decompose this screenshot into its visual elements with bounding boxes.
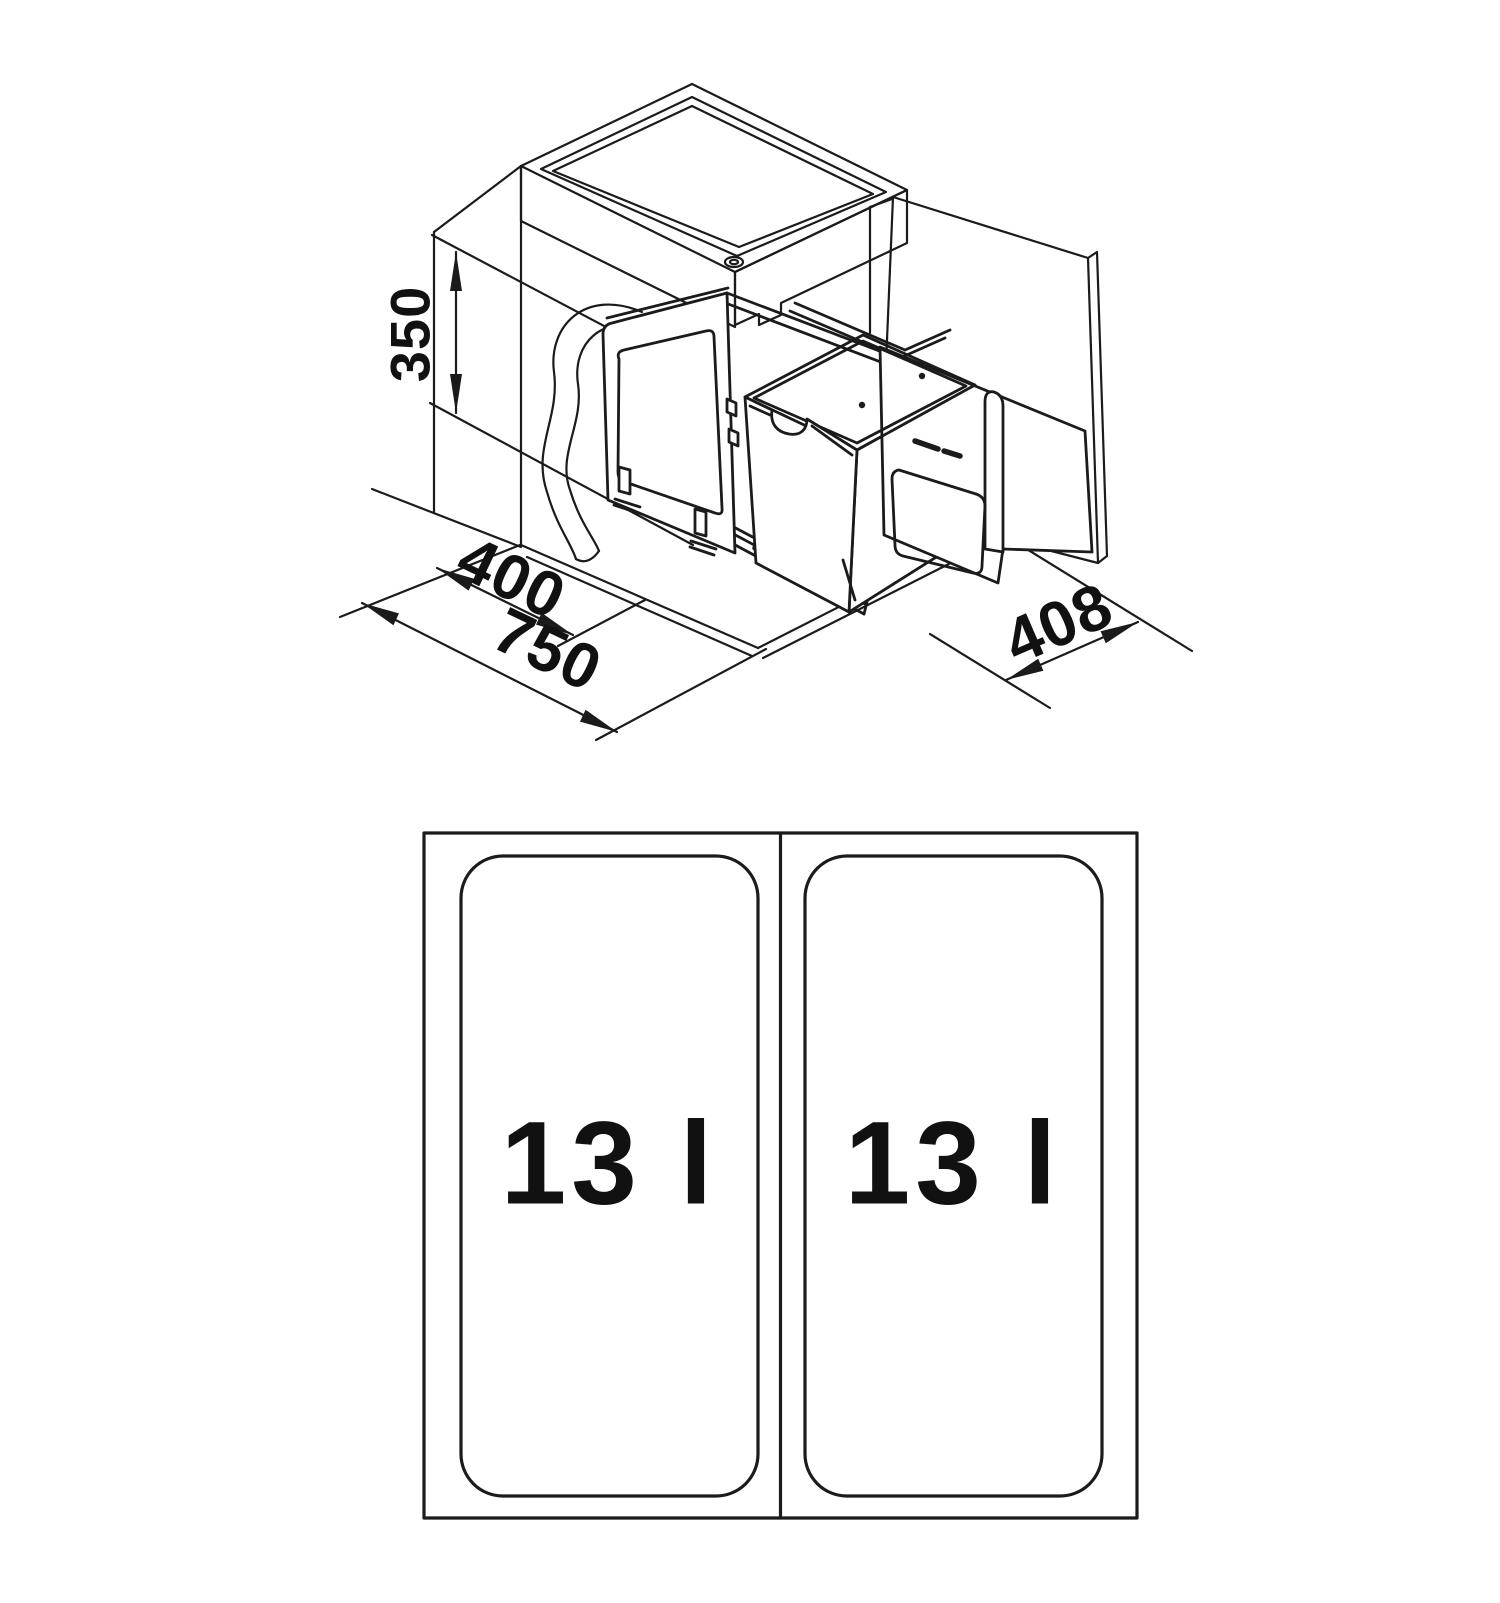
technical-drawing: 350 400 750 408: [0, 0, 1500, 1603]
compartment-right-capacity: 13 l: [845, 1097, 1062, 1229]
frame-panel-left: [603, 288, 738, 555]
compartment-left-capacity: 13 l: [501, 1097, 718, 1229]
dimension-depth-label: 408: [993, 568, 1122, 678]
arrow-left-icon: [362, 603, 399, 625]
isometric-view: 350 400 750 408: [340, 84, 1192, 740]
diagram-page: 350 400 750 408: [0, 0, 1500, 1603]
arrow-right-icon: [580, 710, 617, 732]
dimension-depth: 408: [993, 568, 1138, 680]
plan-view: 13 l 13 l: [424, 833, 1137, 1518]
drain-hole: [725, 257, 743, 267]
mounting-clip: [619, 467, 630, 494]
arrow-down-icon: [450, 374, 462, 413]
dimension-height: 350: [379, 252, 462, 413]
rivet: [859, 402, 865, 408]
dimension-height-label: 350: [379, 286, 442, 382]
frame-corner-post: [985, 392, 1003, 552]
rivet: [919, 373, 925, 379]
arrow-up-icon: [450, 252, 462, 291]
dimension-cabinet-width: 750: [362, 593, 617, 732]
mounting-clip: [695, 509, 706, 536]
